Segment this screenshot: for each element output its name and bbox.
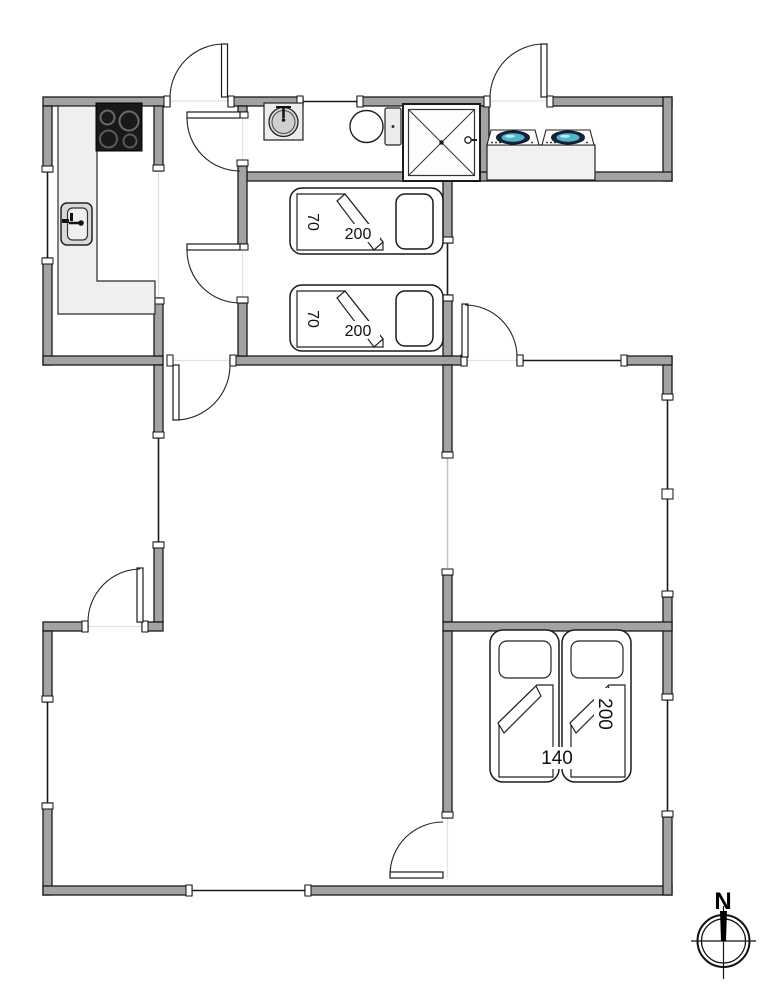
- shower-icon: [403, 104, 480, 181]
- floor-plan-svg: 70 200 70 200 200 140 N: [0, 0, 767, 984]
- bed2-width-label: 70: [304, 310, 321, 328]
- washbasin-icon: [264, 103, 303, 140]
- washing-machine-icon: [487, 130, 539, 145]
- stove-cooktop-icon: [96, 103, 142, 151]
- double-bed-length-label: 200: [594, 698, 615, 730]
- floor-plan: 70 200 70 200 200 140 N: [0, 0, 767, 984]
- kitchen-sink-icon: [61, 203, 92, 245]
- north-arrow-icon: [720, 911, 727, 941]
- bed2-length-label: 200: [345, 323, 372, 340]
- bed1-length-label: 200: [345, 226, 372, 243]
- tumble-dryer-icon: [542, 130, 594, 145]
- single-bed-1: 70 200: [290, 188, 443, 254]
- bed1-width-label: 70: [304, 213, 321, 231]
- double-bed-width-label: 140: [541, 748, 573, 769]
- laundry-plinth: [487, 145, 595, 180]
- single-bed-2: 70 200: [290, 285, 443, 351]
- toilet-icon: [350, 108, 401, 145]
